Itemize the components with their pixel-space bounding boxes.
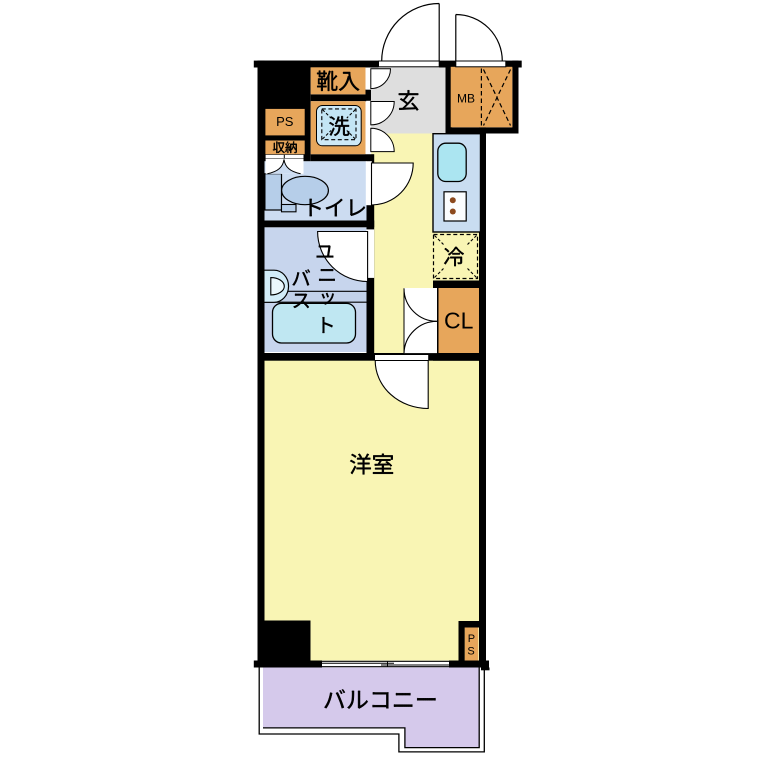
- svg-text:P: P: [468, 633, 475, 645]
- svg-text:PS: PS: [276, 114, 294, 129]
- svg-text:S: S: [467, 646, 474, 658]
- svg-text:MB: MB: [457, 91, 475, 105]
- svg-text:CL: CL: [444, 308, 474, 334]
